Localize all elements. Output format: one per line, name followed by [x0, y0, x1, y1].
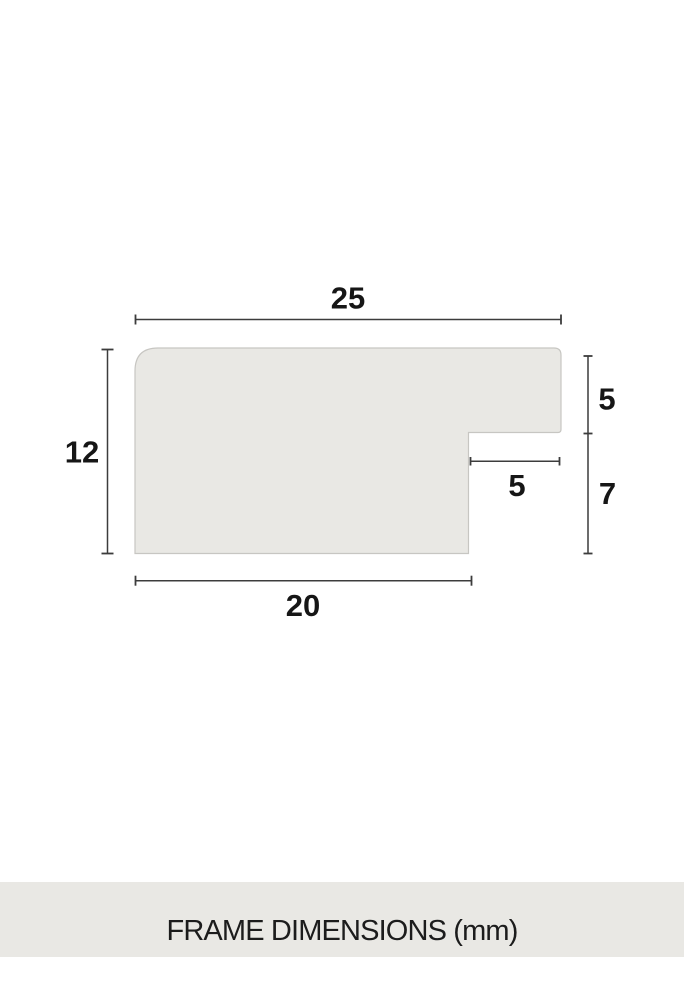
svg-text:5: 5: [598, 382, 615, 417]
svg-text:7: 7: [599, 476, 616, 511]
svg-text:20: 20: [286, 588, 320, 623]
svg-text:25: 25: [331, 281, 365, 316]
svg-text:12: 12: [65, 435, 99, 470]
svg-text:5: 5: [508, 468, 525, 503]
